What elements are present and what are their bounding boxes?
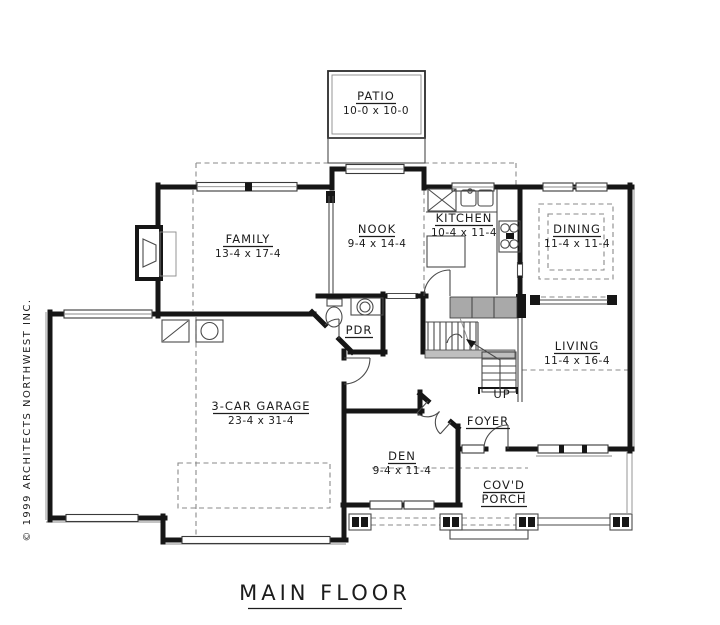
label-family: FAMILY 13-4 x 17-4 xyxy=(215,232,281,260)
family-window xyxy=(197,183,297,192)
kitchen-hall-door xyxy=(424,270,450,296)
label-foyer: FOYER xyxy=(466,414,510,429)
den-windows xyxy=(370,501,434,509)
label-living: LIVING 11-4 x 16-4 xyxy=(544,339,610,367)
foyer-name: FOYER xyxy=(467,414,509,428)
pdr-name: PDR xyxy=(346,323,373,337)
plan-title: MAIN FLOOR xyxy=(239,581,411,605)
garage-name: 3-CAR GARAGE xyxy=(211,399,310,413)
kitchen-island xyxy=(427,236,465,267)
hall-cabinets xyxy=(450,297,517,318)
dining-windows xyxy=(543,183,607,191)
stairs-up-label: UP xyxy=(493,387,510,401)
label-den: DEN 9-4 x 11-4 xyxy=(373,449,432,477)
windows xyxy=(64,165,608,544)
living-bay-window xyxy=(538,445,608,453)
patio-structure xyxy=(328,71,425,163)
fireplace xyxy=(137,227,176,279)
up-arrow xyxy=(466,339,500,390)
patio-name: PATIO xyxy=(357,89,395,103)
copyright: © 1999 ARCHITECTS NORTHWEST INC. xyxy=(22,298,33,541)
range xyxy=(499,221,520,252)
label-dining: DINING 11-4 x 11-4 xyxy=(544,222,610,250)
porch-post xyxy=(610,514,632,530)
dining-name: DINING xyxy=(553,222,601,236)
nook-slider-door xyxy=(346,165,404,174)
floor-plan-drawing: PATIO 10-0 x 10-0 FAMILY 13-4 x 17-4 NOO… xyxy=(0,0,720,625)
label-pdr: PDR xyxy=(345,323,373,338)
family-dims: 13-4 x 17-4 xyxy=(215,248,281,260)
sheet-title: MAIN FLOOR xyxy=(239,581,411,609)
label-patio: PATIO 10-0 x 10-0 xyxy=(343,89,409,117)
floor-plan-sheet: PATIO 10-0 x 10-0 FAMILY 13-4 x 17-4 NOO… xyxy=(0,0,720,625)
family-name: FAMILY xyxy=(226,232,271,246)
garage-side-window xyxy=(64,310,152,318)
dishwasher xyxy=(428,189,456,211)
room-labels: PATIO 10-0 x 10-0 FAMILY 13-4 x 17-4 NOO… xyxy=(211,89,610,507)
garage-dims: 23-4 x 31-4 xyxy=(228,415,294,427)
stairs xyxy=(425,318,517,394)
nook-dims: 9-4 x 14-4 xyxy=(348,238,407,250)
label-porch: COV'D PORCH xyxy=(481,478,527,507)
kitchen-dims: 10-4 x 11-4 xyxy=(431,227,497,239)
label-up: UP xyxy=(493,387,510,401)
living-dims: 11-4 x 16-4 xyxy=(544,355,610,367)
porch-name-line1: COV'D xyxy=(483,478,525,492)
kitchen-name: KITCHEN xyxy=(436,211,493,225)
label-garage: 3-CAR GARAGE 23-4 x 31-4 xyxy=(211,399,310,427)
label-kitchen: KITCHEN 10-4 x 11-4 xyxy=(431,211,497,239)
den-dims: 9-4 x 11-4 xyxy=(373,465,432,477)
garage-entry-door xyxy=(344,358,370,384)
label-nook: NOOK 9-4 x 14-4 xyxy=(348,222,407,250)
porch-post xyxy=(349,514,371,530)
kitchen-fixtures xyxy=(426,189,520,318)
dining-dims: 11-4 x 11-4 xyxy=(544,238,610,250)
garage-door-small xyxy=(66,515,138,522)
nook-name: NOOK xyxy=(358,222,396,236)
copyright-notice: © 1999 ARCHITECTS NORTHWEST INC. xyxy=(22,298,33,541)
porch-step xyxy=(450,530,528,539)
porch-post xyxy=(516,514,538,530)
den-name: DEN xyxy=(388,449,416,463)
laundry-units xyxy=(162,320,223,342)
garage-door-large xyxy=(182,537,330,544)
porch-name-line2: PORCH xyxy=(481,492,526,506)
patio-dims: 10-0 x 10-0 xyxy=(343,105,409,117)
porch-post xyxy=(440,514,462,530)
foyer-window xyxy=(462,445,484,453)
living-name: LIVING xyxy=(555,339,600,353)
